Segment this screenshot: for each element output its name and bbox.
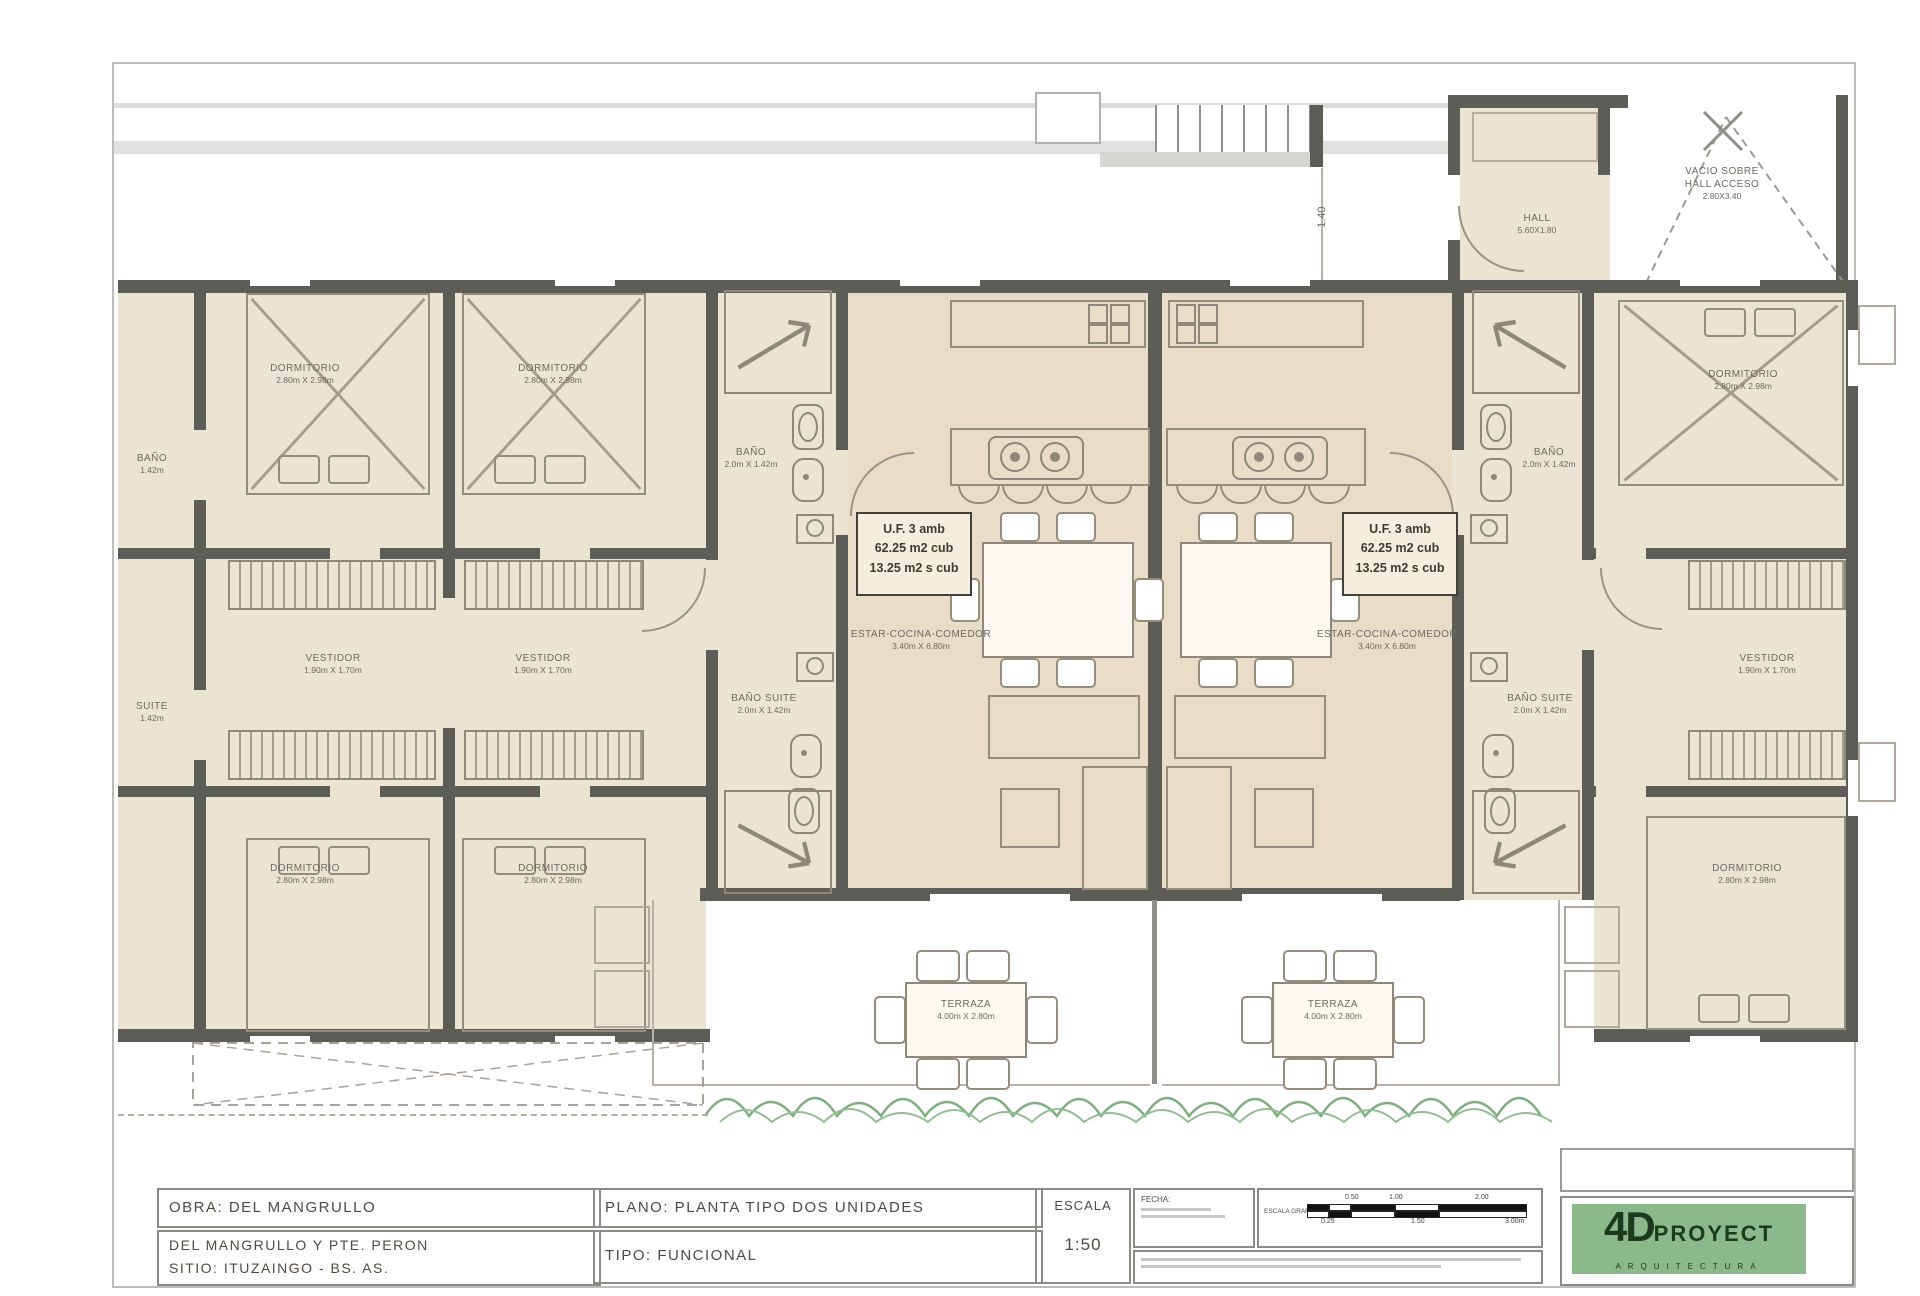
toilet xyxy=(792,404,824,450)
wall xyxy=(1846,280,1858,1042)
chair xyxy=(1056,658,1096,688)
shower xyxy=(1472,290,1580,394)
unit-info-box: U.F. 3 amb 62.25 m2 cub 13.25 m2 s cub xyxy=(856,512,972,596)
bidet xyxy=(1482,734,1514,778)
appliance-icon xyxy=(1198,324,1218,344)
void-x-icon xyxy=(1700,108,1746,154)
chair xyxy=(966,1058,1010,1090)
titleblock-tipo: TIPO: FUNCIONAL xyxy=(593,1230,1043,1284)
titleblock-obra: OBRA: DEL MANGRULLO xyxy=(157,1188,601,1228)
scale-bar-row xyxy=(1307,1211,1531,1218)
room-label-terraza: TERRAZA4.00m X 2.80m xyxy=(907,998,1025,1022)
shaft-box xyxy=(1035,92,1101,144)
burner-icon xyxy=(1000,442,1030,472)
room-label-dormitorio: DORMITORIO2.80m X 2.98m xyxy=(1668,368,1818,392)
appliance-icon xyxy=(1198,304,1218,324)
terrace-table: TERRAZA4.00m X 2.80m xyxy=(1272,982,1394,1058)
door-gap xyxy=(194,430,206,500)
chair xyxy=(1000,658,1040,688)
appliance-icon xyxy=(1176,324,1196,344)
patio-dashed-area xyxy=(190,1040,706,1110)
chair xyxy=(1283,950,1327,982)
room-label-dormitorio: DORMITORIO2.80m X 2.98m xyxy=(1672,862,1822,886)
wall xyxy=(836,293,848,900)
coffee-table xyxy=(1000,788,1060,848)
appliance-icon xyxy=(1110,304,1130,324)
door-gap xyxy=(706,560,718,650)
boundary-dash-line xyxy=(118,1114,708,1116)
room-label-hall: HALL5.60X1.80 xyxy=(1495,212,1579,236)
wall xyxy=(118,548,706,559)
wardrobe xyxy=(1688,560,1846,610)
pillow xyxy=(494,455,536,484)
wall xyxy=(1452,293,1464,900)
bed xyxy=(1618,300,1844,486)
burner-icon xyxy=(1284,442,1314,472)
logo: 4DPROYECT ARQUITECTURA xyxy=(1572,1204,1806,1274)
chair xyxy=(916,1058,960,1090)
exterior-box xyxy=(1858,742,1896,802)
appliance-icon xyxy=(1110,324,1130,344)
sink xyxy=(796,652,834,682)
pillow xyxy=(328,455,370,484)
titleblock-fecha: FECHA: xyxy=(1133,1188,1255,1248)
shower xyxy=(724,790,832,894)
room-label-dormitorio: DORMITORIO2.80m X 2.98m xyxy=(478,362,628,386)
titleblock-logo-box: 4DPROYECT ARQUITECTURA xyxy=(1560,1196,1854,1286)
chair xyxy=(966,950,1010,982)
wall xyxy=(118,786,706,797)
chair xyxy=(1134,578,1164,622)
wardrobe xyxy=(228,560,436,610)
graphic-scale: 0.50 1.00 2.00 0.25 1.50 3.00m xyxy=(1307,1194,1531,1232)
staircase xyxy=(1155,105,1323,153)
shower-arrow-icon xyxy=(1474,792,1578,892)
bed xyxy=(462,293,646,495)
wall xyxy=(1448,95,1460,175)
wardrobe xyxy=(464,560,644,610)
drawing-sheet: 1.40 HALL5.60X1.80 VACIO SOBRE HALL ACCE… xyxy=(0,0,1920,1296)
pillow xyxy=(1748,994,1790,1023)
sink xyxy=(796,514,834,544)
door-gap xyxy=(540,548,590,559)
dining-table xyxy=(1180,542,1332,658)
sofa xyxy=(1166,766,1232,890)
planter-box xyxy=(594,906,650,964)
wardrobe xyxy=(1688,730,1846,780)
terrace-table: TERRAZA4.00m X 2.80m xyxy=(905,982,1027,1058)
pillow xyxy=(1704,308,1746,337)
void-label: VACIO SOBRE HALL ACCESO 2.80X3.40 xyxy=(1662,165,1782,202)
wardrobe xyxy=(464,730,644,780)
window-gap xyxy=(900,280,980,286)
chair xyxy=(1333,1058,1377,1090)
titleblock-scalebar: ESCALA GRAFICA 0.50 1.00 2.00 0.25 1.50 … xyxy=(1257,1188,1543,1248)
room-label-dormitorio: DORMITORIO2.80m X 2.98m xyxy=(230,362,380,386)
chair xyxy=(1333,950,1377,982)
chair xyxy=(1198,658,1238,688)
shower xyxy=(724,290,832,394)
pillow xyxy=(278,455,320,484)
wall xyxy=(118,280,710,293)
scale-ticks-top: 0.50 1.00 2.00 xyxy=(1307,1194,1531,1204)
room-label-estar: ESTAR-COCINA-COMEDOR3.40m X 6.80m xyxy=(850,628,992,652)
door-gap xyxy=(1596,548,1646,559)
toilet xyxy=(1480,404,1512,450)
titleblock-escala: ESCALA 1:50 xyxy=(1035,1188,1131,1284)
appliance-icon xyxy=(1088,324,1108,344)
room-label-suite-edge: SUITE1.42m xyxy=(114,700,190,724)
appliance-icon xyxy=(1176,304,1196,324)
stair-landing xyxy=(1100,152,1318,167)
titleblock-disclaimer xyxy=(1133,1250,1543,1284)
scale-ticks-bottom: 0.25 1.50 3.00m xyxy=(1307,1218,1531,1232)
room-label-bano-edge: BAÑO1.42m xyxy=(114,452,190,476)
exterior-box xyxy=(1858,305,1896,365)
chair xyxy=(1026,996,1058,1044)
pillow xyxy=(1698,994,1740,1023)
dimension-label: 1.40 xyxy=(1315,195,1329,239)
sofa xyxy=(988,695,1140,759)
wall xyxy=(194,293,206,1029)
room-label-bano-suite: BAÑO SUITE2.0m X 1.42m xyxy=(1490,692,1590,716)
window-gap xyxy=(555,280,615,286)
room-label-bano: BAÑO2.0m X 1.42m xyxy=(708,446,794,470)
door-gap xyxy=(443,598,455,728)
dining-table xyxy=(982,542,1134,658)
sink xyxy=(1470,652,1508,682)
wall xyxy=(1598,95,1610,175)
room-label-vestidor: VESTIDOR1.90m X 1.70m xyxy=(258,652,408,676)
burner-icon xyxy=(1244,442,1274,472)
planter-box xyxy=(594,970,650,1028)
sofa xyxy=(1082,766,1148,890)
sink xyxy=(1470,514,1508,544)
chair xyxy=(916,950,960,982)
hall-mat xyxy=(1472,112,1598,162)
room-label-bano-suite: BAÑO SUITE2.0m X 1.42m xyxy=(714,692,814,716)
room-neighbor-strip xyxy=(118,280,194,1042)
titleblock-address: DEL MANGRULLO Y PTE. PERON SITIO: ITUZAI… xyxy=(157,1230,601,1286)
bidet xyxy=(792,458,824,502)
door-gap xyxy=(194,690,206,760)
pillow xyxy=(544,455,586,484)
planter-box xyxy=(1564,970,1620,1028)
unit-info-box: U.F. 3 amb 62.25 m2 cub 13.25 m2 s cub xyxy=(1342,512,1458,596)
vegetation-line xyxy=(700,1072,1570,1130)
wardrobe xyxy=(228,730,436,780)
appliance-icon xyxy=(1088,304,1108,324)
room-label-bano: BAÑO2.0m X 1.42m xyxy=(1506,446,1592,470)
room-label-dormitorio: DORMITORIO2.80m X 2.98m xyxy=(230,862,380,886)
burner-icon xyxy=(1040,442,1070,472)
logo-text: 4DPROYECT xyxy=(1572,1204,1806,1260)
chair xyxy=(1393,996,1425,1044)
room-label-dormitorio: DORMITORIO2.80m X 2.98m xyxy=(478,862,628,886)
room-label-estar: ESTAR-COCINA-COMEDOR3.40m X 6.80m xyxy=(1316,628,1458,652)
window-gap xyxy=(1848,330,1858,386)
door-gap xyxy=(836,450,848,535)
chair xyxy=(1254,512,1294,542)
shower-arrow-icon xyxy=(1474,292,1578,392)
window-gap xyxy=(1690,1036,1760,1042)
chair xyxy=(1241,996,1273,1044)
terrace-door-gap xyxy=(930,894,1070,901)
shower xyxy=(1472,790,1580,894)
chair xyxy=(1056,512,1096,542)
door-gap xyxy=(330,548,380,559)
coffee-table xyxy=(1254,788,1314,848)
window-gap xyxy=(1848,760,1858,816)
chair xyxy=(874,996,906,1044)
door-gap xyxy=(540,786,590,797)
door-gap xyxy=(330,786,380,797)
logo-subtext: ARQUITECTURA xyxy=(1572,1262,1806,1271)
micro-text-line xyxy=(1141,1258,1521,1261)
scale-bar-row xyxy=(1307,1204,1531,1211)
planter-box xyxy=(1564,906,1620,964)
window-gap xyxy=(1680,280,1760,286)
chair xyxy=(1254,658,1294,688)
micro-text-line xyxy=(1141,1208,1211,1211)
chair xyxy=(1198,512,1238,542)
door-gap xyxy=(1596,786,1646,797)
titleblock-empty-box xyxy=(1560,1148,1854,1192)
wall xyxy=(1310,105,1323,167)
bidet xyxy=(790,734,822,778)
chair xyxy=(1000,512,1040,542)
chair xyxy=(1283,1058,1327,1090)
room-label-vestidor: VESTIDOR1.90m X 1.70m xyxy=(468,652,618,676)
terrace-edge xyxy=(1558,900,1560,1086)
terrace-door-gap xyxy=(1242,894,1382,901)
pillow xyxy=(1754,308,1796,337)
terrace-divider xyxy=(1152,900,1157,1084)
shower-arrow-icon xyxy=(726,792,830,892)
sofa xyxy=(1174,695,1326,759)
window-gap xyxy=(1230,280,1310,286)
room-label-vestidor: VESTIDOR1.90m X 1.70m xyxy=(1692,652,1842,676)
micro-text-line xyxy=(1141,1265,1441,1268)
door-gap xyxy=(1582,560,1594,650)
titleblock-plano: PLANO: PLANTA TIPO DOS UNIDADES xyxy=(593,1188,1043,1228)
shower-arrow-icon xyxy=(726,292,830,392)
micro-text-line xyxy=(1141,1215,1225,1218)
window-gap xyxy=(250,280,310,286)
bed xyxy=(1646,816,1846,1030)
bed xyxy=(246,293,430,495)
room-label-terraza: TERRAZA4.00m X 2.80m xyxy=(1274,998,1392,1022)
